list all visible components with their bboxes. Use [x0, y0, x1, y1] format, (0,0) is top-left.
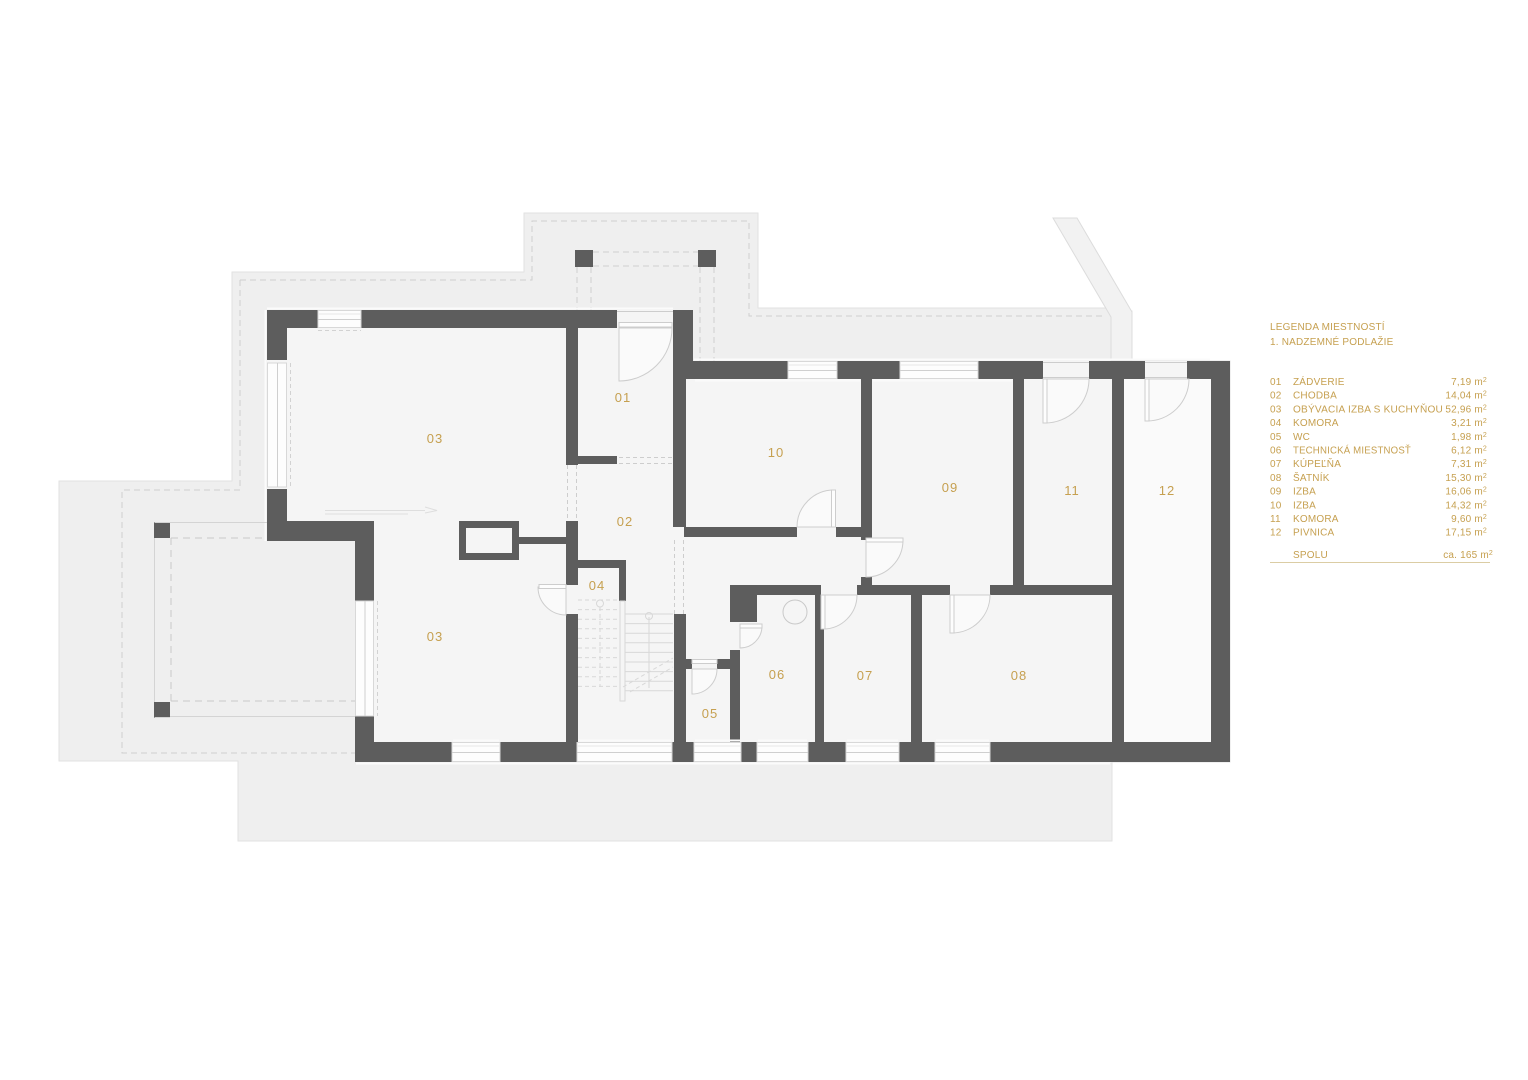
svg-text:05: 05 — [1270, 432, 1282, 443]
svg-text:7,19 m2: 7,19 m2 — [1451, 377, 1487, 388]
svg-text:ŠATNÍK: ŠATNÍK — [1293, 471, 1330, 484]
svg-text:1. NADZEMNÉ PODLAŽIE: 1. NADZEMNÉ PODLAŽIE — [1270, 335, 1394, 348]
svg-text:07: 07 — [857, 668, 873, 683]
svg-text:04: 04 — [1270, 418, 1282, 429]
svg-text:CHODBA: CHODBA — [1293, 391, 1337, 402]
svg-text:IZBA: IZBA — [1293, 500, 1316, 511]
svg-text:02: 02 — [1270, 391, 1282, 402]
svg-text:IZBA: IZBA — [1293, 487, 1316, 498]
svg-text:08: 08 — [1011, 668, 1027, 683]
svg-text:PIVNICA: PIVNICA — [1293, 528, 1335, 539]
svg-text:KOMORA: KOMORA — [1293, 418, 1339, 429]
svg-text:ca. 165 m2: ca. 165 m2 — [1443, 550, 1493, 561]
svg-text:LEGENDA MIESTNOSTÍ: LEGENDA MIESTNOSTÍ — [1270, 320, 1385, 333]
svg-text:01: 01 — [1270, 377, 1282, 388]
svg-text:OBÝVACIA IZBA S KUCHYŇOU: OBÝVACIA IZBA S KUCHYŇOU — [1293, 402, 1443, 415]
svg-text:52,96 m2: 52,96 m2 — [1445, 404, 1487, 415]
svg-text:06: 06 — [769, 667, 785, 682]
svg-text:06: 06 — [1270, 446, 1282, 457]
svg-text:KOMORA: KOMORA — [1293, 514, 1339, 525]
svg-text:05: 05 — [702, 706, 718, 721]
svg-text:11: 11 — [1064, 483, 1080, 498]
svg-text:ZÁDVERIE: ZÁDVERIE — [1293, 375, 1345, 388]
svg-text:03: 03 — [427, 629, 443, 644]
svg-text:14,32 m2: 14,32 m2 — [1445, 500, 1487, 511]
svg-text:15,30 m2: 15,30 m2 — [1445, 473, 1487, 484]
svg-text:7,31 m2: 7,31 m2 — [1451, 459, 1487, 470]
svg-text:03: 03 — [427, 431, 443, 446]
svg-text:TECHNICKÁ MIESTNOSŤ: TECHNICKÁ MIESTNOSŤ — [1293, 444, 1411, 457]
svg-text:1,98 m2: 1,98 m2 — [1451, 432, 1487, 443]
svg-text:09: 09 — [1270, 487, 1282, 498]
svg-text:17,15 m2: 17,15 m2 — [1445, 528, 1487, 539]
svg-text:KÚPEĽŇA: KÚPEĽŇA — [1293, 457, 1341, 470]
svg-text:3,21 m2: 3,21 m2 — [1451, 418, 1487, 429]
svg-text:10: 10 — [1270, 500, 1282, 511]
svg-text:08: 08 — [1270, 473, 1282, 484]
svg-text:09: 09 — [942, 480, 958, 495]
svg-text:12: 12 — [1270, 528, 1282, 539]
svg-text:SPOLU: SPOLU — [1293, 550, 1328, 561]
svg-text:04: 04 — [589, 578, 605, 593]
svg-text:02: 02 — [617, 514, 633, 529]
svg-text:WC: WC — [1293, 432, 1310, 443]
svg-text:03: 03 — [1270, 404, 1282, 415]
svg-text:6,12 m2: 6,12 m2 — [1451, 446, 1487, 457]
svg-text:10: 10 — [768, 445, 784, 460]
svg-text:14,04 m2: 14,04 m2 — [1445, 391, 1487, 402]
svg-text:07: 07 — [1270, 459, 1282, 470]
svg-text:9,60 m2: 9,60 m2 — [1451, 514, 1487, 525]
svg-text:16,06 m2: 16,06 m2 — [1445, 487, 1487, 498]
svg-text:12: 12 — [1159, 483, 1175, 498]
svg-text:01: 01 — [615, 390, 631, 405]
svg-text:11: 11 — [1270, 514, 1281, 525]
